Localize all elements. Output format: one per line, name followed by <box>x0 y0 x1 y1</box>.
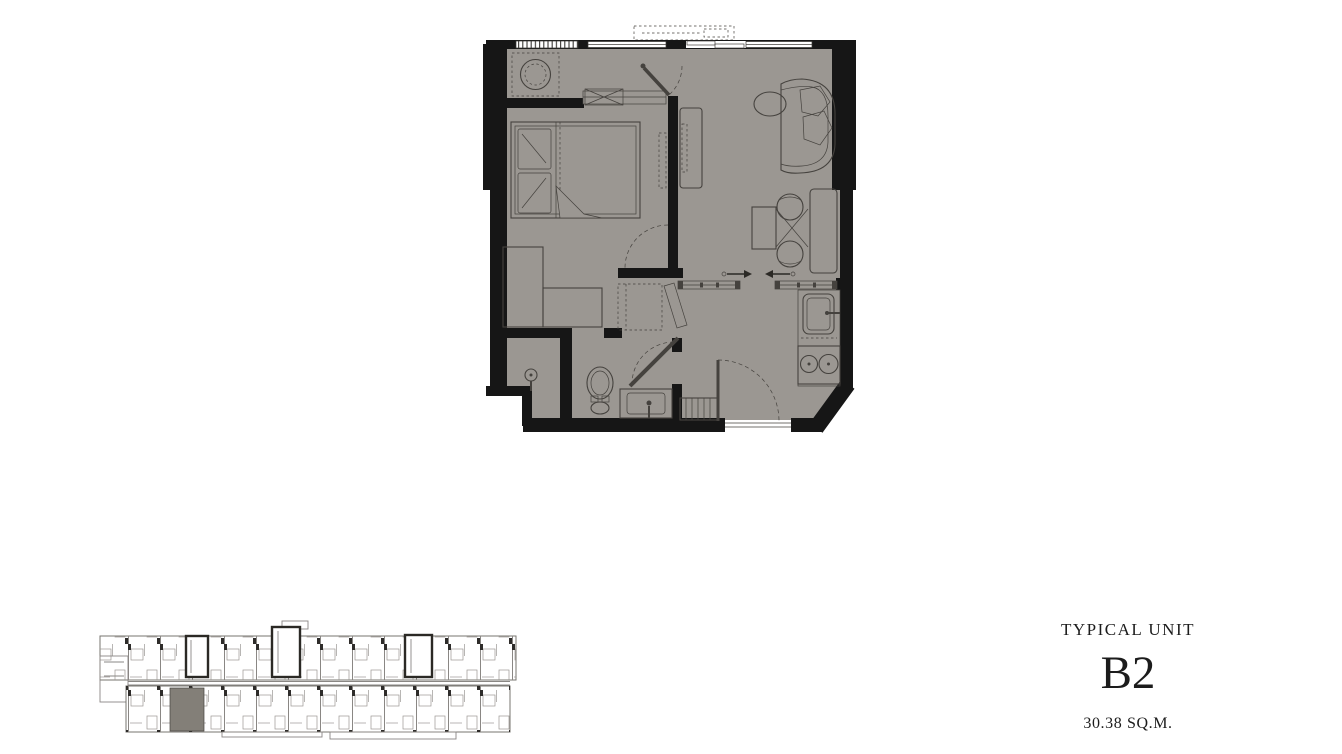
window-ledge <box>583 89 666 105</box>
windows <box>516 41 812 48</box>
louvre-window <box>516 41 578 48</box>
unit-info-block: TYPICAL UNIT B2 30.38 SQ.M. <box>1030 620 1226 733</box>
unit-code: B2 <box>1030 649 1226 698</box>
unit-area: 30.38 SQ.M. <box>1030 715 1226 733</box>
keyplan-highlighted-unit <box>170 688 204 731</box>
bedroom-window <box>588 42 666 48</box>
unit-floor-plan <box>483 26 856 432</box>
keyplan-corridor <box>128 682 510 686</box>
living-window <box>746 42 812 48</box>
balcony-sliding-door <box>686 41 746 48</box>
building-key-plan <box>100 621 516 739</box>
ac-ledge <box>634 26 734 40</box>
typical-unit-label: TYPICAL UNIT <box>1030 620 1226 640</box>
